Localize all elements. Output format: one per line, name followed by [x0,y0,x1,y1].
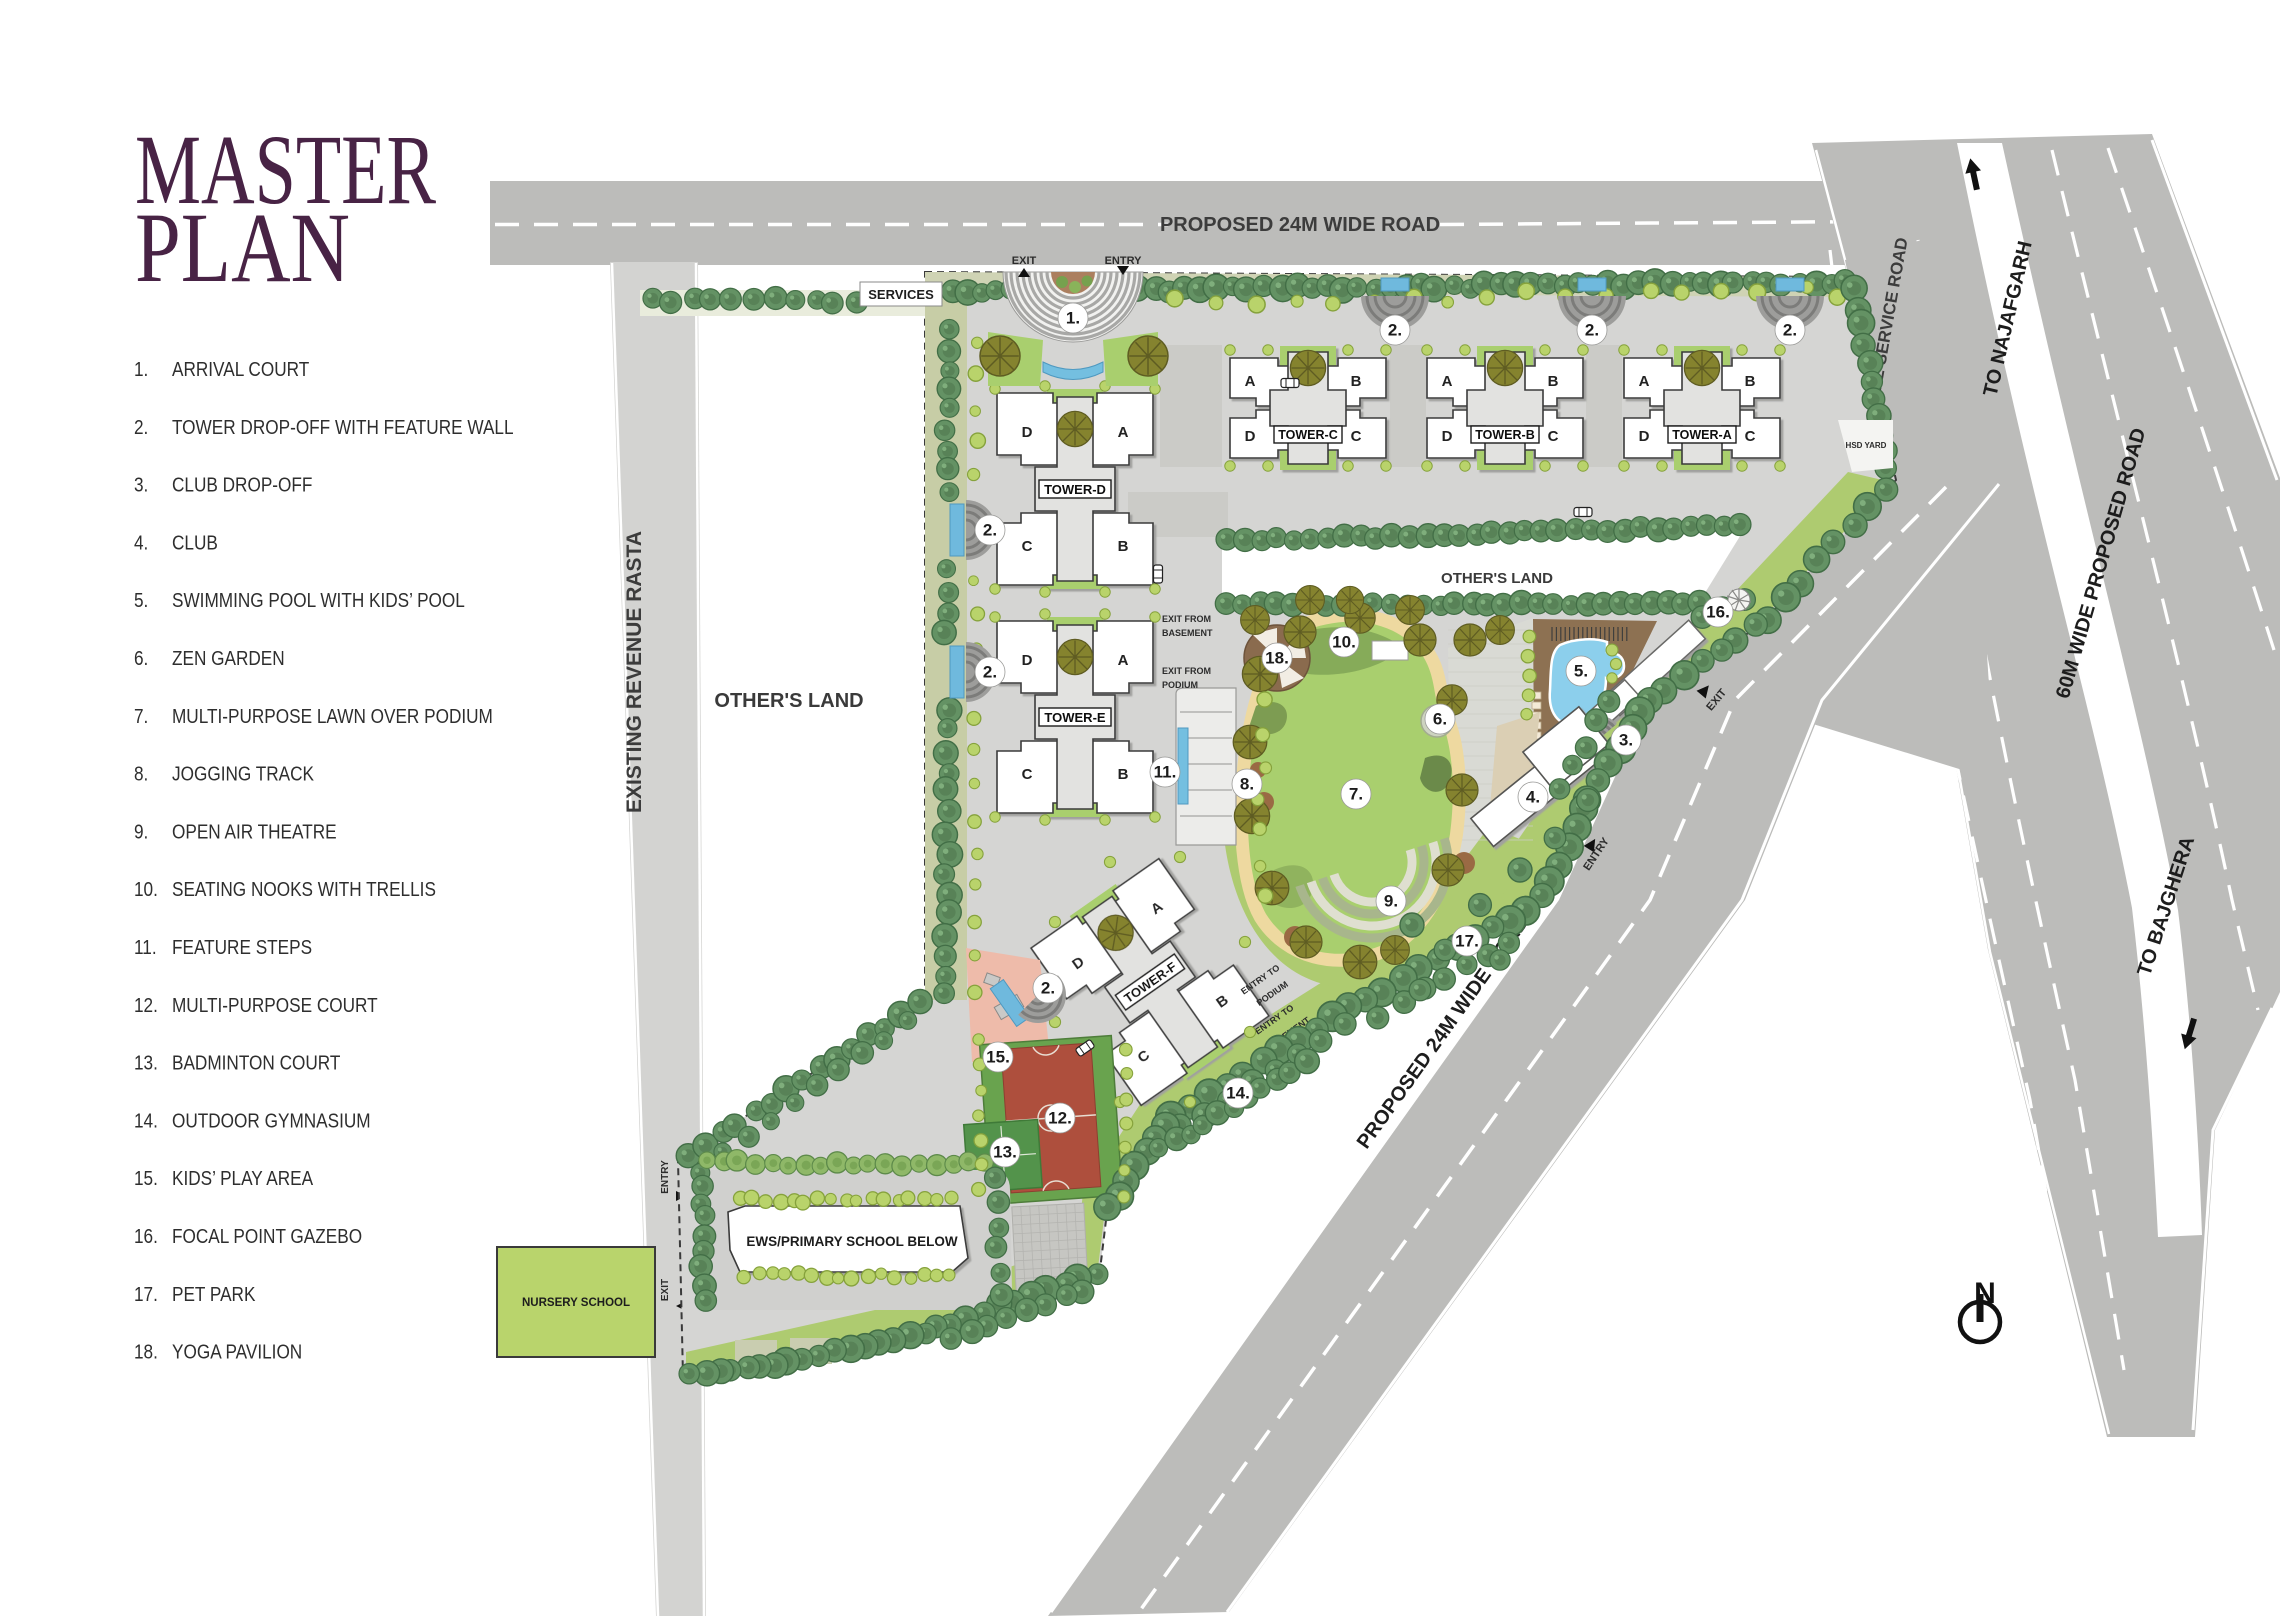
svg-text:2.: 2. [1041,979,1055,998]
svg-text:A: A [1118,424,1129,441]
svg-text:EXISTING REVENUE RASTA: EXISTING REVENUE RASTA [623,531,646,813]
svg-text:9.: 9. [1384,892,1398,911]
svg-text:KIDS’ PLAY AREA: KIDS’ PLAY AREA [172,1167,314,1190]
svg-text:A: A [1245,373,1256,390]
svg-text:EXIT: EXIT [1012,255,1037,267]
svg-text:4.: 4. [134,531,148,554]
svg-text:A: A [1442,373,1453,390]
svg-text:6.: 6. [1433,710,1447,729]
svg-text:13.: 13. [134,1051,158,1074]
svg-text:B: B [1351,373,1362,390]
svg-text:2.: 2. [1783,321,1797,340]
svg-text:10.: 10. [134,878,158,901]
svg-text:NURSERY SCHOOL: NURSERY SCHOOL [522,1297,630,1309]
svg-text:TOWER DROP-OFF WITH FEATURE WA: TOWER DROP-OFF WITH FEATURE WALL [172,416,514,439]
svg-text:C: C [1351,428,1362,445]
svg-text:D: D [1639,428,1650,445]
svg-text:JOGGING TRACK: JOGGING TRACK [172,762,315,785]
svg-text:1.: 1. [134,358,148,381]
svg-text:PROPOSED 24M WIDE ROAD: PROPOSED 24M WIDE ROAD [1160,214,1440,236]
svg-text:C: C [1745,428,1756,445]
svg-text:SWIMMING POOL WITH KIDS’ POOL: SWIMMING POOL WITH KIDS’ POOL [172,589,465,612]
svg-text:D: D [1022,652,1033,669]
svg-text:2.: 2. [1585,321,1599,340]
svg-text:14.: 14. [1226,1084,1250,1103]
svg-text:CLUB: CLUB [172,531,218,554]
svg-text:14.: 14. [134,1109,158,1132]
svg-text:BADMINTON COURT: BADMINTON COURT [172,1051,340,1074]
svg-text:18.: 18. [1265,649,1289,668]
svg-text:B: B [1745,373,1756,390]
svg-text:3.: 3. [1619,731,1633,750]
svg-text:2.: 2. [134,416,148,439]
svg-text:TOWER-E: TOWER-E [1044,710,1105,725]
svg-text:B: B [1548,373,1559,390]
svg-text:D: D [1022,424,1033,441]
svg-text:17.: 17. [1455,932,1479,951]
svg-text:A: A [1639,373,1650,390]
svg-text:2.: 2. [983,521,997,540]
svg-text:16.: 16. [1706,603,1730,622]
svg-text:11.: 11. [1154,763,1177,782]
svg-text:MULTI-PURPOSE COURT: MULTI-PURPOSE COURT [172,994,378,1017]
svg-text:9.: 9. [134,820,148,843]
svg-text:8.: 8. [134,762,148,785]
svg-text:3.: 3. [134,473,148,496]
svg-text:OTHER'S LAND: OTHER'S LAND [1441,570,1553,587]
svg-text:C: C [1022,538,1033,555]
svg-text:SEATING NOOKS WITH TRELLIS: SEATING NOOKS WITH TRELLIS [172,878,436,901]
svg-text:10.: 10. [1332,633,1356,652]
svg-text:YOGA PAVILION: YOGA PAVILION [172,1340,302,1363]
svg-text:EXIT FROM: EXIT FROM [1162,614,1211,624]
svg-text:PODIUM: PODIUM [1162,680,1198,690]
svg-text:OPEN AIR THEATRE: OPEN AIR THEATRE [172,820,337,843]
svg-text:TOWER-C: TOWER-C [1278,428,1338,442]
svg-text:16.: 16. [134,1225,158,1248]
svg-text:TOWER-B: TOWER-B [1475,428,1535,442]
svg-text:8.: 8. [1240,775,1254,794]
svg-text:15.: 15. [986,1048,1010,1067]
svg-text:OUTDOOR GYMNASIUM: OUTDOOR GYMNASIUM [172,1109,371,1132]
svg-text:7.: 7. [134,705,148,728]
svg-text:SERVICES: SERVICES [868,287,934,302]
svg-text:2.: 2. [1388,321,1402,340]
svg-text:PLAN: PLAN [135,192,350,303]
svg-text:12.: 12. [1048,1109,1072,1128]
svg-text:13.: 13. [993,1143,1017,1162]
svg-text:ENTRY: ENTRY [660,1160,671,1194]
svg-text:FOCAL POINT GAZEBO: FOCAL POINT GAZEBO [172,1225,362,1248]
svg-text:12.: 12. [134,994,158,1017]
svg-text:17.: 17. [134,1283,158,1306]
svg-text:BASEMENT: BASEMENT [1162,628,1213,638]
svg-text:B: B [1118,766,1129,783]
svg-text:D: D [1442,428,1453,445]
svg-text:HSD YARD: HSD YARD [1846,441,1887,450]
svg-text:18.: 18. [134,1340,158,1363]
svg-text:7.: 7. [1349,785,1363,804]
svg-text:C: C [1548,428,1559,445]
svg-text:1.: 1. [1066,309,1080,328]
svg-text:PET PARK: PET PARK [172,1283,256,1306]
svg-text:CLUB DROP-OFF: CLUB DROP-OFF [172,473,312,496]
svg-text:FEATURE STEPS: FEATURE STEPS [172,936,312,959]
svg-text:EXIT: EXIT [660,1279,671,1301]
svg-text:EWS/PRIMARY SCHOOL BELOW: EWS/PRIMARY SCHOOL BELOW [746,1234,958,1249]
svg-text:OTHER'S LAND: OTHER'S LAND [714,690,863,712]
svg-text:ENTRY: ENTRY [1105,255,1143,267]
svg-text:6.: 6. [134,647,148,670]
svg-text:5.: 5. [134,589,148,612]
svg-text:11.: 11. [134,936,157,959]
svg-text:ARRIVAL COURT: ARRIVAL COURT [172,358,309,381]
svg-text:B: B [1118,538,1129,555]
svg-text:5.: 5. [1574,662,1588,681]
svg-text:N: N [1974,1277,1996,1310]
svg-text:2.: 2. [983,663,997,682]
svg-text:TOWER-A: TOWER-A [1672,428,1732,442]
svg-text:TOWER-D: TOWER-D [1044,482,1106,497]
svg-text:15.: 15. [134,1167,158,1190]
svg-text:A: A [1118,652,1129,669]
svg-text:MULTI-PURPOSE LAWN OVER PODIUM: MULTI-PURPOSE LAWN OVER PODIUM [172,705,493,728]
svg-text:4.: 4. [1526,788,1540,807]
svg-text:EXIT FROM: EXIT FROM [1162,666,1211,676]
svg-text:C: C [1022,766,1033,783]
svg-text:ZEN GARDEN: ZEN GARDEN [172,647,285,670]
svg-text:D: D [1245,428,1256,445]
